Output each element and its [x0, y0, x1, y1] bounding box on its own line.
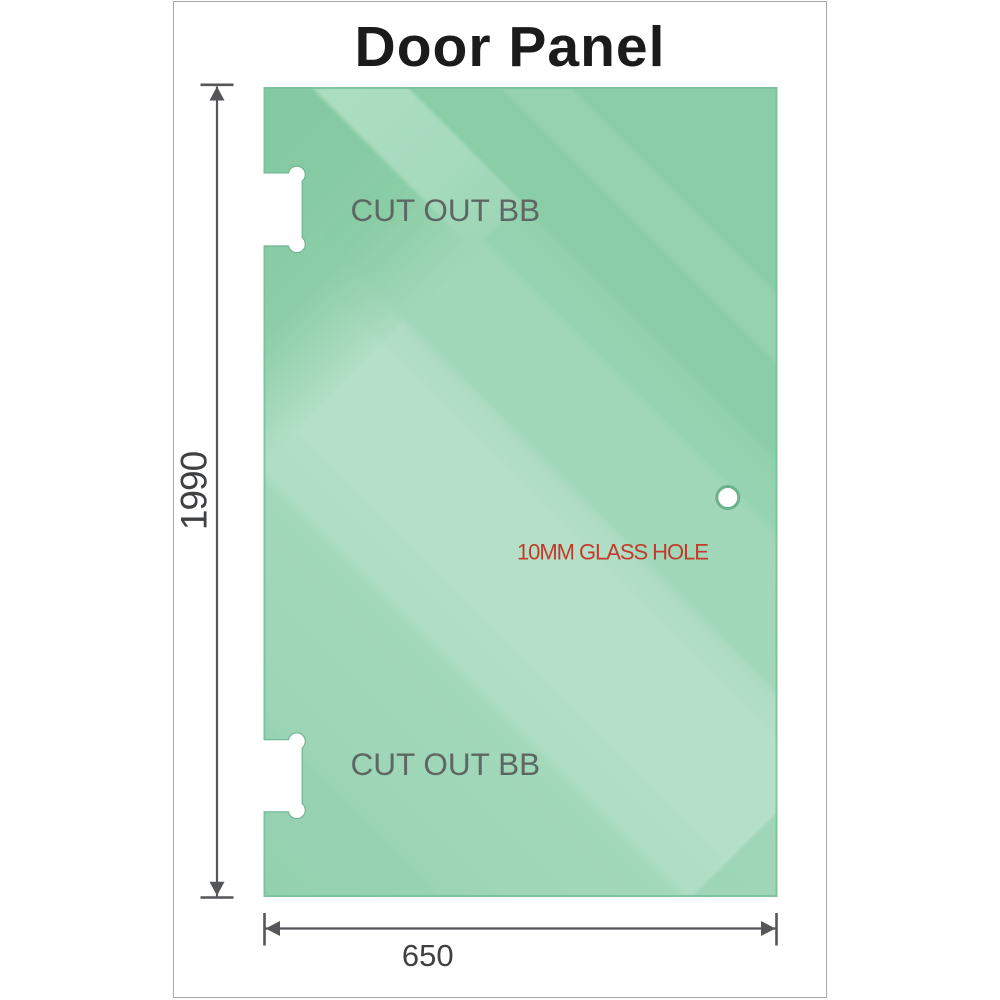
svg-text:10MM GLASS HOLE: 10MM GLASS HOLE [517, 539, 708, 564]
svg-text:CUT OUT BB: CUT OUT BB [351, 746, 541, 782]
svg-text:Door Panel: Door Panel [355, 15, 666, 79]
svg-text:650: 650 [402, 938, 454, 973]
svg-text:1990: 1990 [174, 451, 215, 530]
svg-text:CUT OUT BB: CUT OUT BB [351, 192, 541, 228]
